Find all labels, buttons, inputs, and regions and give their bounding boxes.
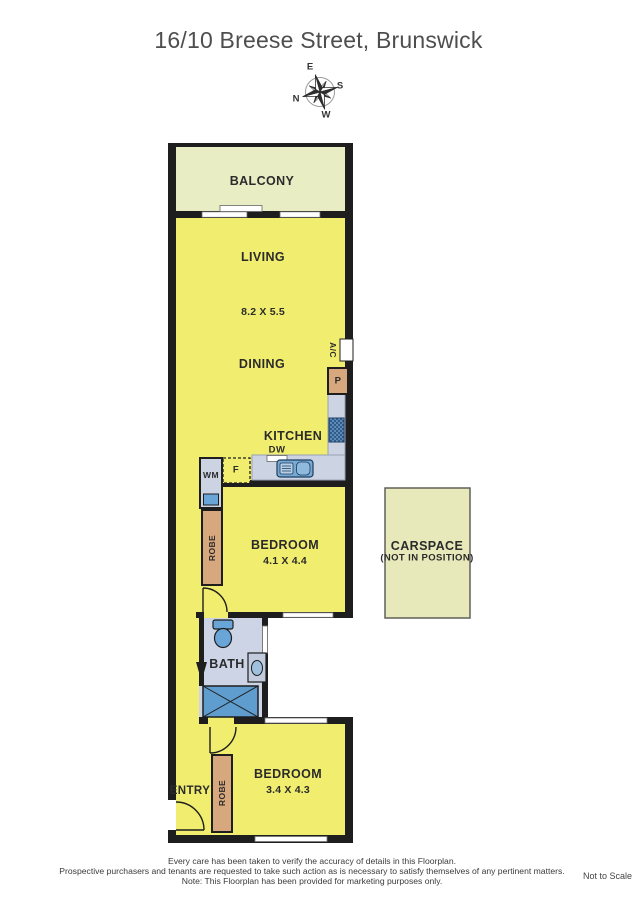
- bedroom1-dimensions: 4.1 X 4.4: [263, 555, 307, 567]
- carspace-label: CARSPACE: [391, 539, 463, 553]
- dishwasher-label: DW: [269, 445, 286, 456]
- pantry-label: P: [335, 376, 342, 387]
- disclaimer-line3: Note: This Floorplan has been provided f…: [0, 877, 624, 887]
- washing-machine-label: WM: [203, 470, 219, 480]
- dining-label: DINING: [239, 357, 285, 371]
- bedroom1-label: BEDROOM: [251, 538, 319, 552]
- living-label: LIVING: [241, 250, 285, 264]
- floorplan-drawing: [0, 0, 637, 900]
- disclaimer: Every care has been taken to verify the …: [0, 857, 624, 886]
- bath-label: BATH: [209, 657, 244, 671]
- compass-north-label: N: [293, 94, 300, 105]
- ac-label: A/C: [328, 342, 338, 358]
- vanity-basin: [248, 653, 266, 682]
- entry-label: ENTRY: [170, 785, 211, 797]
- bedroom2-label: BEDROOM: [254, 767, 322, 781]
- window: [283, 613, 333, 618]
- window: [263, 626, 268, 653]
- kitchen-sink-unit: [277, 460, 313, 477]
- balcony-label: BALCONY: [230, 174, 295, 188]
- building-notch: [268, 618, 353, 717]
- compass-west-label: W: [322, 110, 331, 121]
- robe2-label: ROBE: [217, 780, 227, 806]
- living-dimensions: 8.2 X 5.5: [241, 306, 285, 318]
- carspace-note: (NOT IN POSITION): [380, 553, 473, 564]
- laundry-tub: [204, 494, 219, 505]
- compass-south-label: S: [337, 81, 343, 92]
- ac-unit-box: [340, 339, 353, 361]
- robe1-label: ROBE: [207, 535, 217, 561]
- window: [265, 718, 327, 723]
- compass-east-label: E: [307, 62, 313, 73]
- compass-rose-icon: [298, 70, 342, 114]
- not-to-scale-note: Not to Scale: [583, 871, 632, 881]
- bedroom2-dimensions: 3.4 X 4.3: [266, 784, 310, 796]
- fridge-label: F: [233, 465, 239, 476]
- kitchen-label: KITCHEN: [264, 429, 322, 443]
- floorplan-page: 16/10 Breese Street, Brunswick: [0, 0, 637, 900]
- kitchen-sink-top: [329, 418, 344, 442]
- toilet: [213, 620, 233, 648]
- window: [255, 837, 327, 842]
- shower: [203, 686, 258, 717]
